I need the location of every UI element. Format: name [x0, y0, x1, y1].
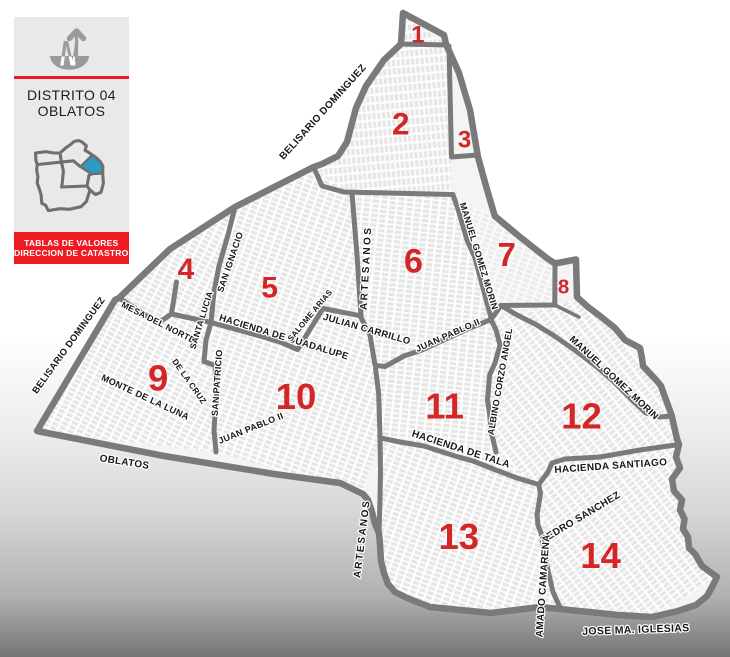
svg-text:OBLATOS: OBLATOS	[99, 453, 150, 472]
svg-text:8: 8	[558, 276, 569, 299]
svg-text:14: 14	[580, 535, 621, 576]
svg-text:9: 9	[148, 357, 168, 398]
svg-text:2: 2	[392, 106, 410, 142]
svg-text:JOSE MA. IGLESIAS: JOSE MA. IGLESIAS	[582, 622, 690, 638]
svg-text:13: 13	[438, 516, 479, 557]
svg-text:5: 5	[261, 271, 278, 304]
svg-text:10: 10	[276, 376, 317, 417]
svg-text:12: 12	[561, 396, 602, 437]
svg-text:3: 3	[458, 127, 471, 154]
svg-text:7: 7	[498, 236, 516, 273]
svg-text:11: 11	[425, 386, 464, 427]
svg-text:1: 1	[411, 22, 424, 49]
svg-text:4: 4	[178, 253, 195, 286]
svg-text:ARTESANOS: ARTESANOS	[352, 499, 373, 579]
svg-text:6: 6	[404, 243, 423, 281]
